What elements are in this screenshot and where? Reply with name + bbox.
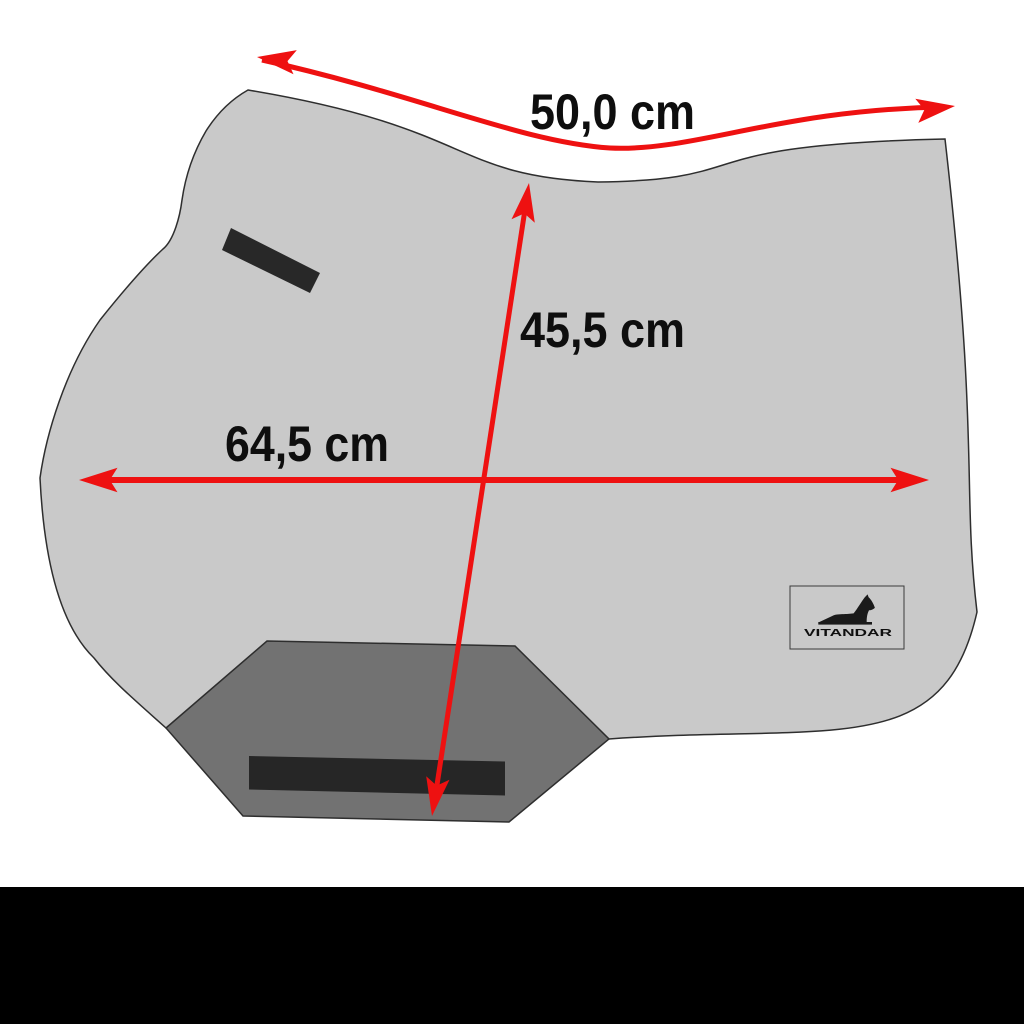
svg-text:50,0 cm: 50,0 cm [530,84,695,140]
svg-text:64,5 cm: 64,5 cm [225,416,389,472]
svg-text:45,5 cm: 45,5 cm [520,302,685,358]
svg-text:VITANDAR: VITANDAR [804,628,893,639]
